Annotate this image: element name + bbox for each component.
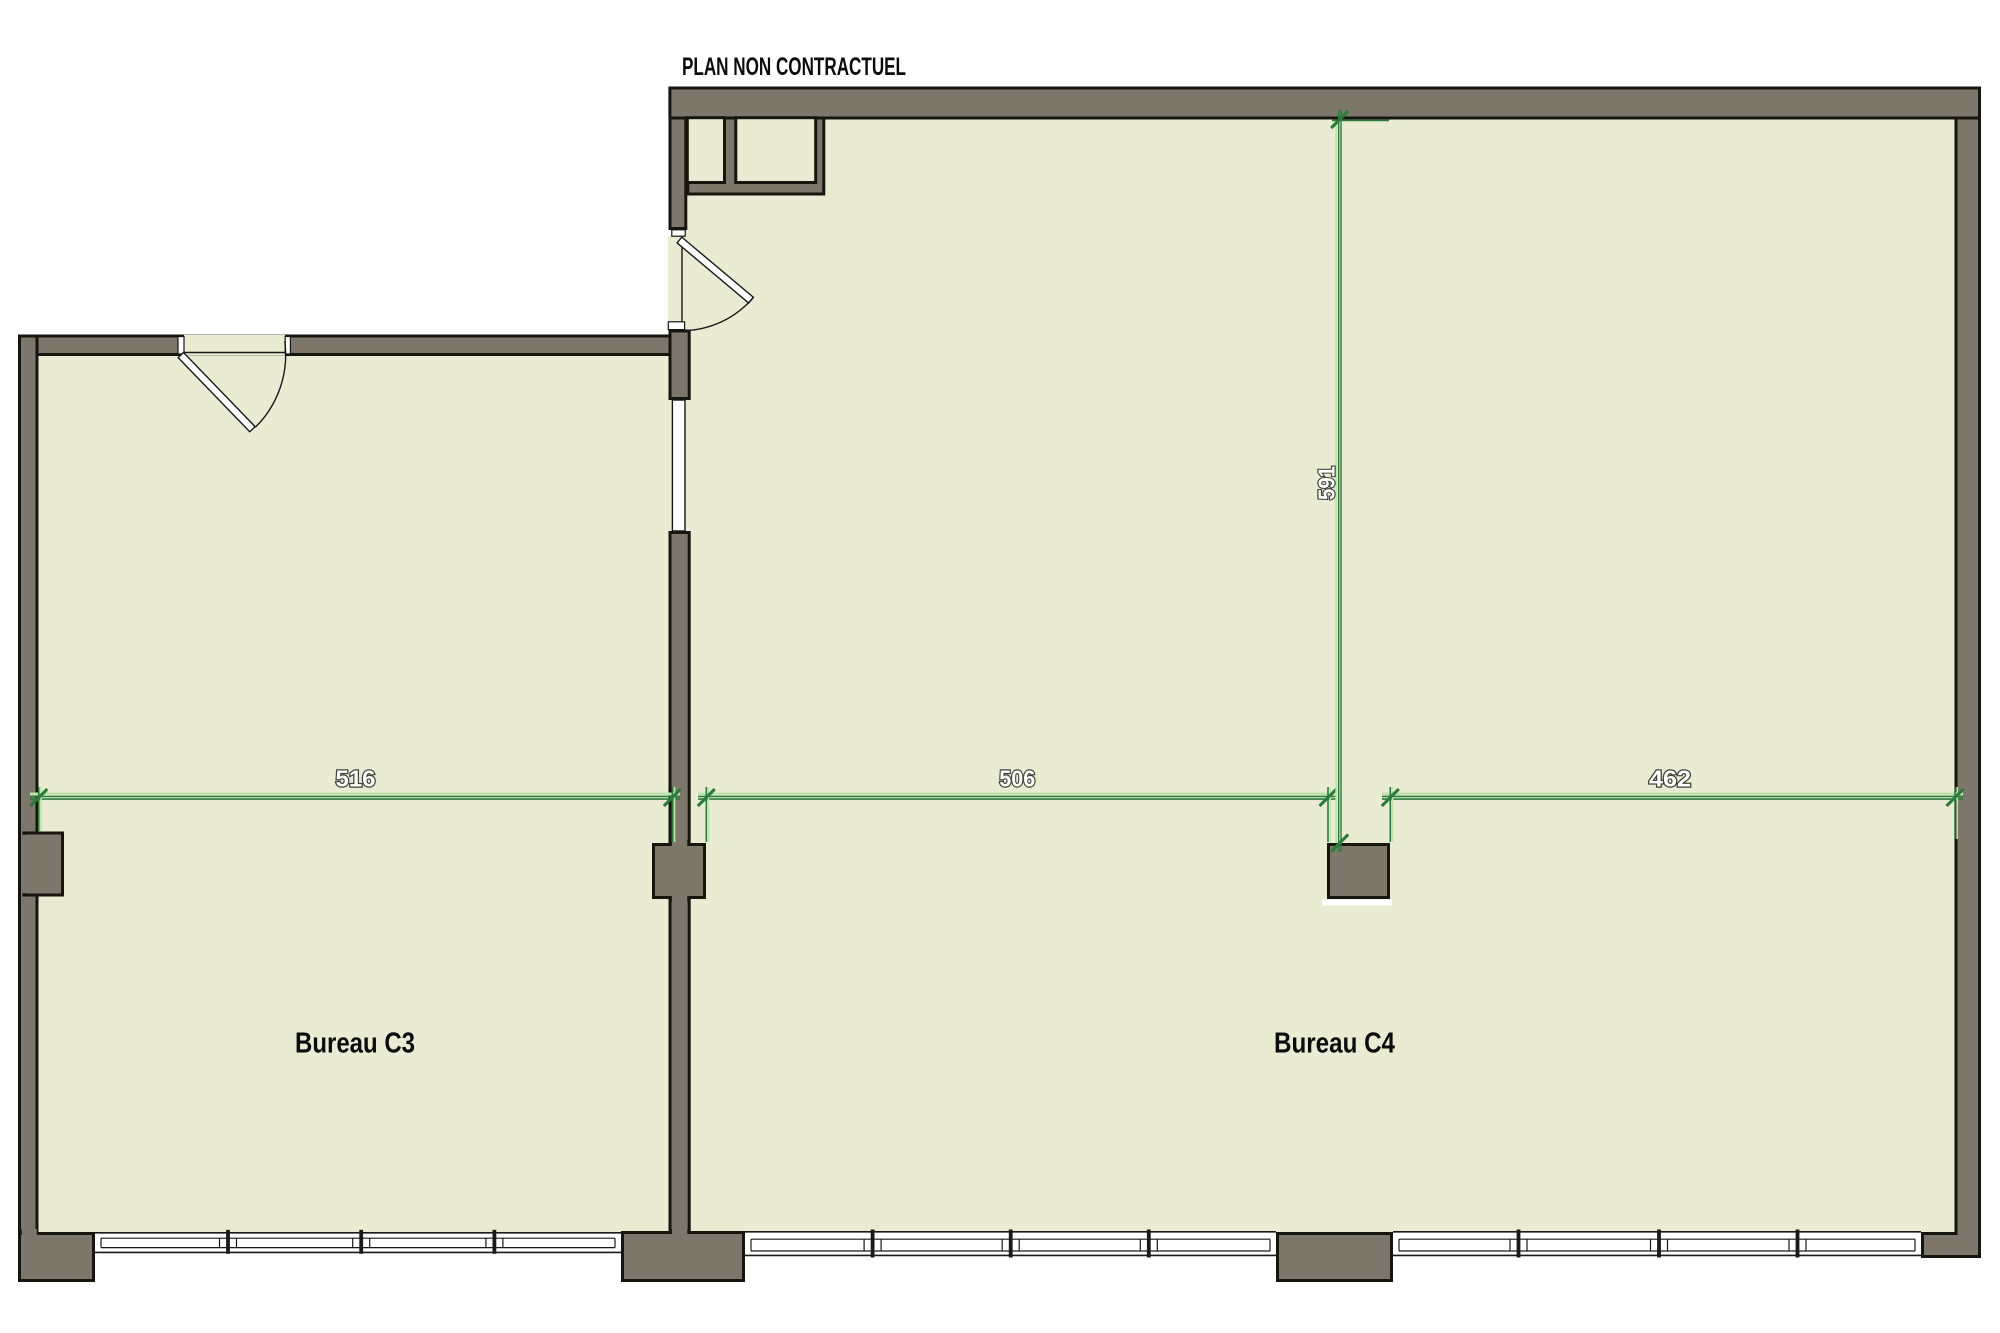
svg-text:591: 591 xyxy=(1314,466,1340,500)
svg-text:Bureau C3: Bureau C3 xyxy=(295,1028,415,1060)
svg-text:462: 462 xyxy=(1649,766,1691,792)
svg-text:PLAN NON CONTRACTUEL: PLAN NON CONTRACTUEL xyxy=(682,53,906,81)
svg-text:Bureau C4: Bureau C4 xyxy=(1274,1028,1395,1060)
svg-text:516: 516 xyxy=(336,766,376,792)
svg-text:506: 506 xyxy=(999,766,1035,792)
